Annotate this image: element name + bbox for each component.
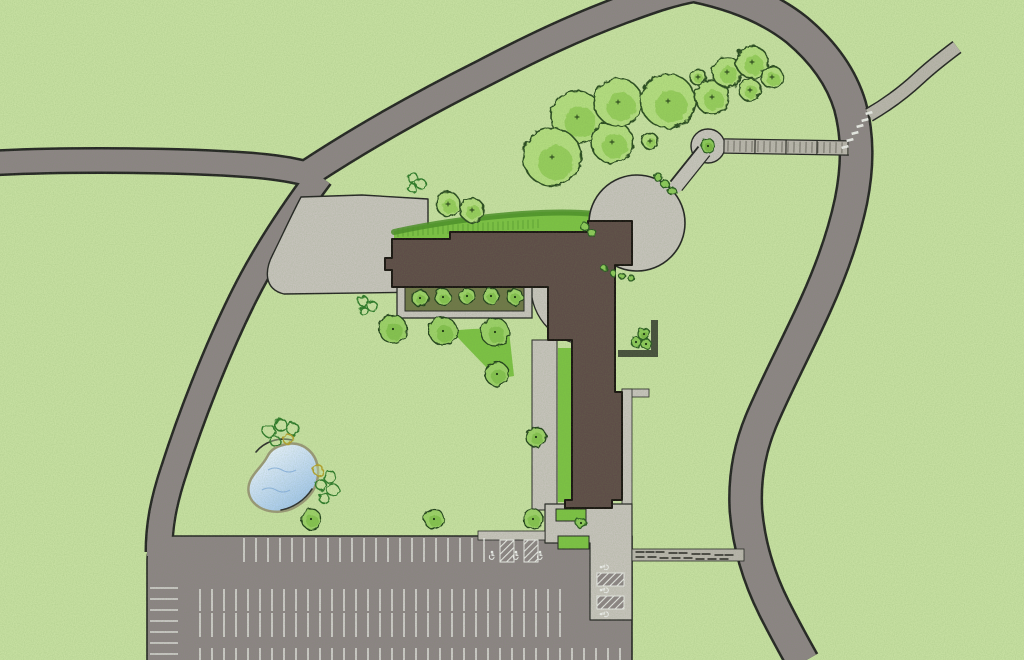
site-plan-map: [0, 0, 1024, 660]
layers: [0, 0, 1024, 660]
print-grain: [0, 0, 1024, 660]
site-plan-canvas: [0, 0, 1024, 660]
